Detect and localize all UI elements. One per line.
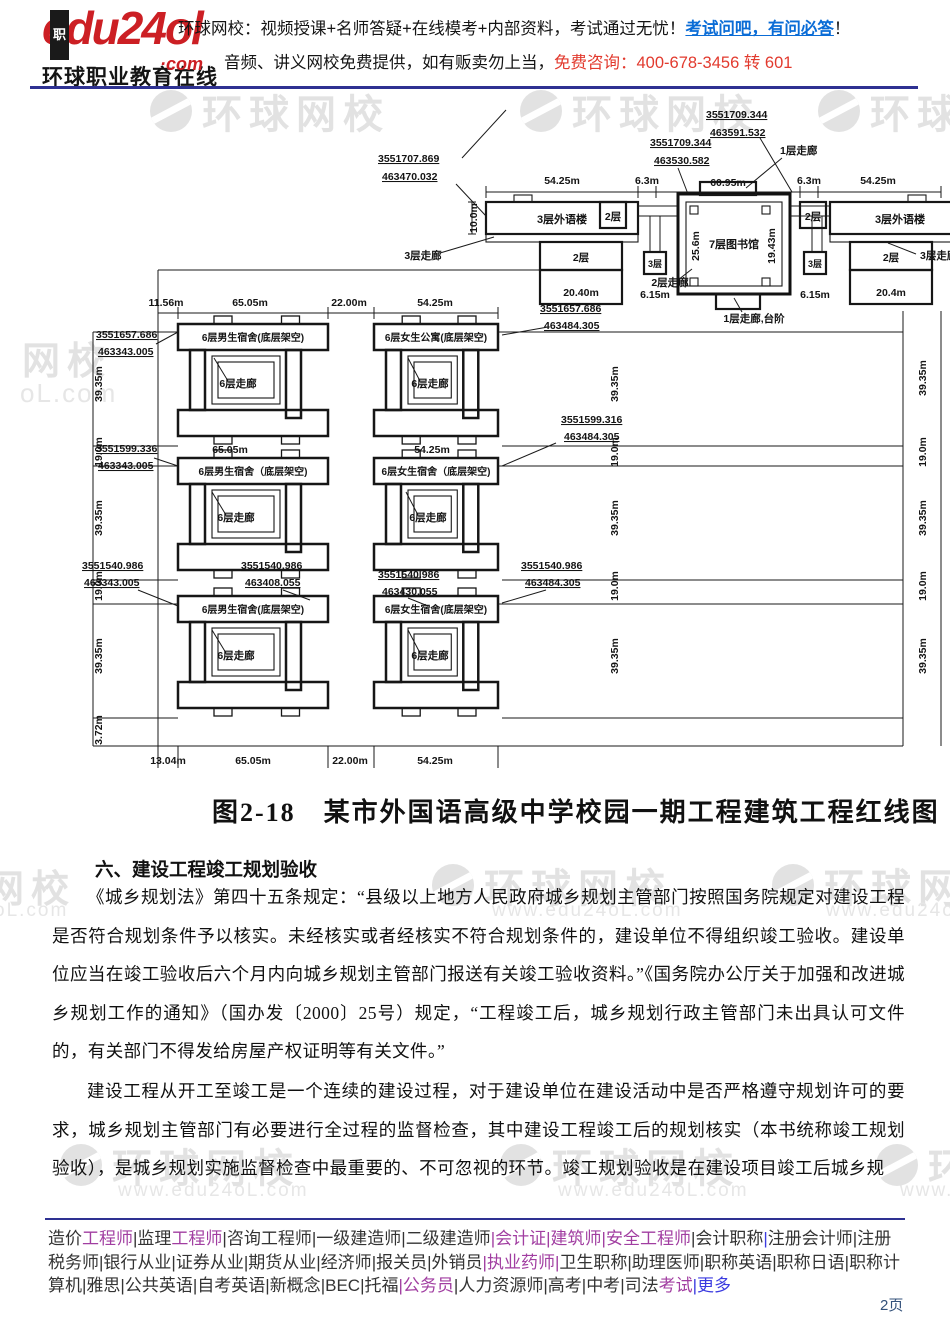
- dim-label: 25.6m: [690, 231, 702, 261]
- dim-label: 3.72m: [93, 715, 105, 745]
- header-line2: 音频、讲义网校免费提供，如有贩卖勿上当，免费咨询：400-678-3456 转 …: [178, 46, 938, 80]
- coord-label: 463470.032: [382, 171, 438, 183]
- header-line1-suffix: ！: [834, 20, 851, 38]
- top-section-coords: 3551707.869 463470.032 3551709.344 46353…: [378, 109, 818, 183]
- coord-label: 3551599.316: [561, 414, 622, 426]
- coord-label: 3551657.686: [96, 329, 157, 341]
- building-label: 3层: [808, 259, 822, 269]
- footer-link[interactable]: 中考: [586, 1276, 620, 1295]
- footer-link[interactable]: 一级建造师: [316, 1229, 401, 1248]
- footer-link[interactable]: 注册会计师: [768, 1229, 853, 1248]
- coord-label: 463591.532: [710, 127, 766, 139]
- dim-label: 11.56m: [148, 297, 183, 309]
- header-divider: [30, 86, 918, 89]
- footer-link[interactable]: BEC: [325, 1276, 360, 1295]
- dim-label: 10.0m: [468, 203, 480, 233]
- building-left-foreign-language: 3层外语楼 3层走廊 2层 2层 20.40m 3层 6.15m 10.0m: [404, 195, 678, 304]
- coord-label: 463484.305: [525, 577, 581, 589]
- dim-label: 6.15m: [640, 289, 670, 301]
- footer-divider: [45, 1218, 905, 1220]
- dim-label: 22.00m: [332, 755, 368, 767]
- document-page: { "header": { "logo_text": "edu24o", "lo…: [0, 0, 950, 1344]
- footer-link[interactable]: 高考: [548, 1276, 582, 1295]
- header-info: 环球网校：视频授课+名师答疑+在线模考+内部资料，考试通过无忧！考试问吧，有问必…: [178, 12, 938, 80]
- building-label: 2层: [805, 211, 822, 223]
- footer-link[interactable]: 公务员: [403, 1276, 454, 1295]
- dim-label: 19.0m: [917, 437, 929, 467]
- footer-link[interactable]: 卫生职称: [559, 1253, 627, 1272]
- coord-label: 463484.305: [564, 431, 620, 443]
- dim-label: 39.35m: [609, 638, 621, 674]
- dim-label: 39.35m: [93, 366, 105, 402]
- building-label: 2层: [883, 252, 900, 264]
- dim-label: 65.05m: [235, 755, 271, 767]
- header-line2-text: 音频、讲义网校免费提供，如有贩卖勿上当，: [224, 54, 554, 72]
- coord-label: 3551657.686: [540, 303, 601, 315]
- building-label: 6层女生宿舍（底层架空): [382, 465, 491, 478]
- coord-label: 3551540.986: [82, 560, 143, 572]
- footer-link[interactable]: 会计证: [495, 1229, 546, 1248]
- footer-link[interactable]: 二级建造师: [406, 1229, 491, 1248]
- footer-link[interactable]: 造价: [48, 1229, 82, 1248]
- building-label: 3层外语楼: [537, 212, 587, 226]
- building-label: 2层: [573, 252, 590, 264]
- footer-link[interactable]: 公共英语: [125, 1276, 193, 1295]
- phone-number: 免费咨询：400-678-3456 转 601: [554, 54, 792, 72]
- dim-label: 39.35m: [917, 360, 929, 396]
- dim-label: 6.15m: [800, 289, 830, 301]
- corridor-label: 6层走廊: [217, 649, 255, 662]
- building-label: 2层: [605, 211, 622, 223]
- footer-link[interactable]: 报关员: [376, 1253, 427, 1272]
- footer-link[interactable]: 会计职称: [695, 1229, 763, 1248]
- coord-label: 3551540.986: [241, 560, 302, 572]
- corridor-label: 1层走廊,台阶: [723, 312, 785, 325]
- coord-label: 463343.005: [98, 346, 154, 358]
- footer-link[interactable]: 咨询工程师: [227, 1229, 312, 1248]
- footer-link[interactable]: 工程师: [82, 1229, 133, 1248]
- coord-label: 3551599.336: [96, 443, 157, 455]
- coord-label: 3551707.869: [378, 153, 439, 165]
- dim-label: 19.43m: [766, 228, 778, 264]
- dim-label: 13.04m: [150, 755, 186, 767]
- building-label: 6层男生宿舍(底层架空): [202, 603, 304, 616]
- dim-label: 39.35m: [93, 638, 105, 674]
- building-library: 7层图书馆 25.6m 19.43m 2层走廊 1层走廊,台阶: [651, 182, 790, 325]
- footer-link[interactable]: 监理: [137, 1229, 171, 1248]
- coord-label: 463343.005: [84, 577, 140, 589]
- page-number: 2页: [880, 1294, 903, 1315]
- header-line1-text: 环球网校：视频授课+名师答疑+在线模考+内部资料，考试通过无忧！: [178, 20, 685, 38]
- dim-label: 20.40m: [563, 287, 599, 299]
- dim-label: 39.35m: [609, 500, 621, 536]
- corridor-label: 6层走廊: [219, 377, 257, 390]
- dim-label: 39.35m: [917, 638, 929, 674]
- corridor-label: 3层走廊: [404, 249, 442, 262]
- footer-link[interactable]: 助理医师: [632, 1253, 700, 1272]
- dim-label: 19.0m: [917, 571, 929, 601]
- coord-label: 463430.055: [382, 586, 438, 598]
- building-label: 6层女生公寓(底层架空): [385, 331, 487, 344]
- coord-label: 463408.055: [245, 577, 301, 589]
- dim-label: 22.00m: [331, 297, 367, 309]
- dim-label: 65.05m: [212, 444, 248, 456]
- paragraph-1: 《城乡规划法》第四十五条规定：“县级以上地方人民政府城乡规划主管部门按照国务院规…: [52, 878, 905, 1071]
- dorm-coord-labels: 3551657.686 463343.005 3551657.686 46348…: [82, 303, 622, 598]
- building-label: 7层图书馆: [709, 237, 759, 251]
- footer-link[interactable]: 雅思: [86, 1276, 120, 1295]
- building-label: 6层男生宿舍(底层架空): [202, 331, 304, 344]
- redline-map-figure: 3551707.869 463470.032 3551709.344 46353…: [78, 106, 950, 791]
- building-label: 3层: [648, 259, 662, 269]
- dim-label: 6.3m: [635, 175, 659, 187]
- building-right-foreign-language: 2层 3层外语楼 2层 3层 6.15m 20.4m 3层走廊: [790, 195, 950, 304]
- footer-link[interactable]: 银行从业: [103, 1253, 171, 1272]
- corridor-label: 2层走廊: [651, 276, 689, 289]
- corridor-label: 6层走廊: [409, 511, 447, 524]
- dim-label: 19.0m: [609, 571, 621, 601]
- corridor-label: 1层走廊: [780, 144, 818, 157]
- dim-label: 54.25m: [417, 755, 453, 767]
- building-label: 6层女生宿舍(底层架空): [385, 603, 487, 616]
- header-line1: 环球网校：视频授课+名师答疑+在线模考+内部资料，考试通过无忧！考试问吧，有问必…: [178, 12, 938, 46]
- corridor-label: 6层走廊: [411, 377, 449, 390]
- footer-link[interactable]: 经济师: [321, 1253, 372, 1272]
- footer-link[interactable]: 司法: [625, 1276, 659, 1295]
- logo-badge: 职: [50, 10, 69, 60]
- coord-label: 463343.005: [98, 460, 154, 472]
- footer-link[interactable]: 新概念: [270, 1276, 321, 1295]
- coord-label: 463484.305: [544, 320, 600, 332]
- corridor-label: 3层走廊: [920, 249, 950, 262]
- footer-links: 造价工程师|监理工程师|咨询工程师|一级建造师|二级建造师|会计证|建筑师|安全…: [48, 1227, 908, 1298]
- ask-link[interactable]: 考试问吧，有问必答: [685, 20, 834, 38]
- watermark-site: www.edu24oL.com: [900, 1180, 950, 1202]
- footer-link[interactable]: 期货从业: [248, 1253, 316, 1272]
- dim-label: 20.4m: [876, 287, 906, 299]
- footer-link[interactable]: 外销员: [432, 1253, 483, 1272]
- dim-label: 54.25m: [544, 175, 580, 187]
- figure-caption: 图2-18 某市外国语高级中学校园一期工程建筑工程红线图: [212, 792, 940, 829]
- footer-link[interactable]: 托福: [365, 1276, 399, 1295]
- dim-label: 39.35m: [93, 500, 105, 536]
- coord-label: 3551540.986: [378, 569, 439, 581]
- dim-label: 39.35m: [609, 366, 621, 402]
- footer-link[interactable]: 职称日语: [777, 1253, 845, 1272]
- footer-link[interactable]: 考试: [659, 1276, 693, 1295]
- coord-label: 3551540.986: [521, 560, 582, 572]
- dorm-vertical-dims: 39.35m 19.0m 39.35m 19.0m 39.35m 3.72m 3…: [93, 360, 929, 745]
- coord-label: 3551709.344: [706, 109, 767, 121]
- body-text: 《城乡规划法》第四十五条规定：“县级以上地方人民政府城乡规划主管部门按照国务院规…: [52, 878, 905, 1188]
- dim-label: 54.25m: [860, 175, 896, 187]
- footer-link[interactable]: 建筑师: [551, 1229, 602, 1248]
- dim-label: 65.05m: [232, 297, 268, 309]
- footer-link[interactable]: 更多: [697, 1276, 731, 1295]
- footer-link[interactable]: 执业药师: [487, 1253, 555, 1272]
- footer-link[interactable]: 自考英语: [197, 1276, 265, 1295]
- dim-label: 54.25m: [417, 297, 453, 309]
- redline-map-svg: 3551707.869 463470.032 3551709.344 46353…: [78, 106, 950, 786]
- building-label: 6层男生宿舍（底层架空): [199, 465, 308, 478]
- footer-link[interactable]: 安全工程师: [606, 1229, 691, 1248]
- dim-label: 6.3m: [797, 175, 821, 187]
- paragraph-2: 建设工程从开工至竣工是一个连续的建设过程，对于建设单位在建设活动中是否严格遵守规…: [52, 1072, 905, 1188]
- footer-link[interactable]: 证券从业: [176, 1253, 244, 1272]
- dorm-leaders: [138, 327, 556, 653]
- footer-link[interactable]: 人力资源师: [458, 1276, 543, 1295]
- coord-label: 3551709.344: [650, 137, 711, 149]
- dim-label: 54.25m: [414, 444, 450, 456]
- footer-link[interactable]: 职称英语: [704, 1253, 772, 1272]
- building-label: 3层外语楼: [875, 212, 925, 226]
- coord-label: 463530.582: [654, 155, 710, 167]
- dim-label: 39.35m: [917, 500, 929, 536]
- footer-link[interactable]: 工程师: [171, 1229, 222, 1248]
- corridor-label: 6层走廊: [411, 649, 449, 662]
- corridor-label: 6层走廊: [217, 511, 255, 524]
